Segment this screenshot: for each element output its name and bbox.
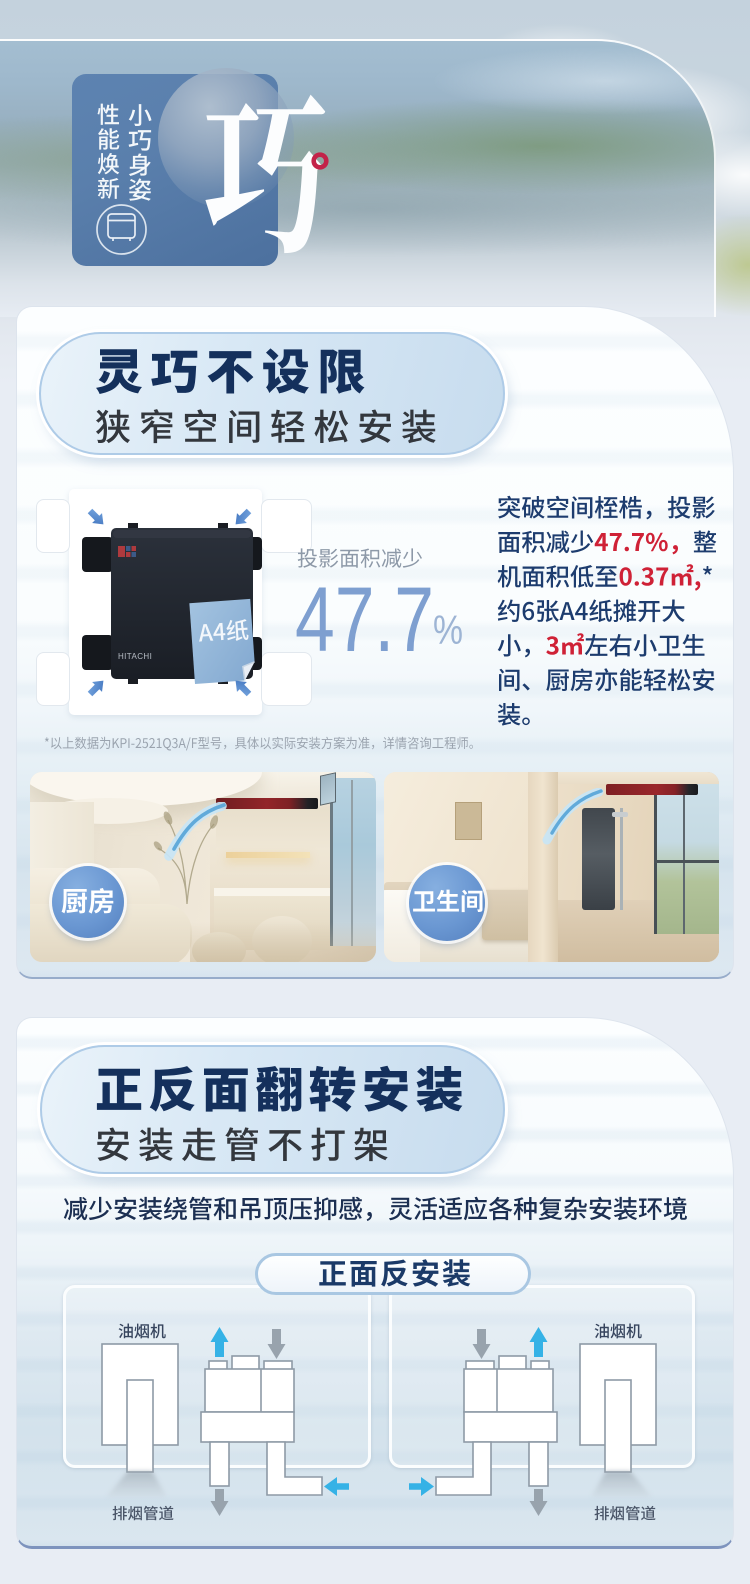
svg-text:47.7: 47.7	[295, 569, 434, 671]
svg-text:HITACHI: HITACHI	[118, 652, 152, 661]
svg-text:%: %	[433, 607, 463, 653]
